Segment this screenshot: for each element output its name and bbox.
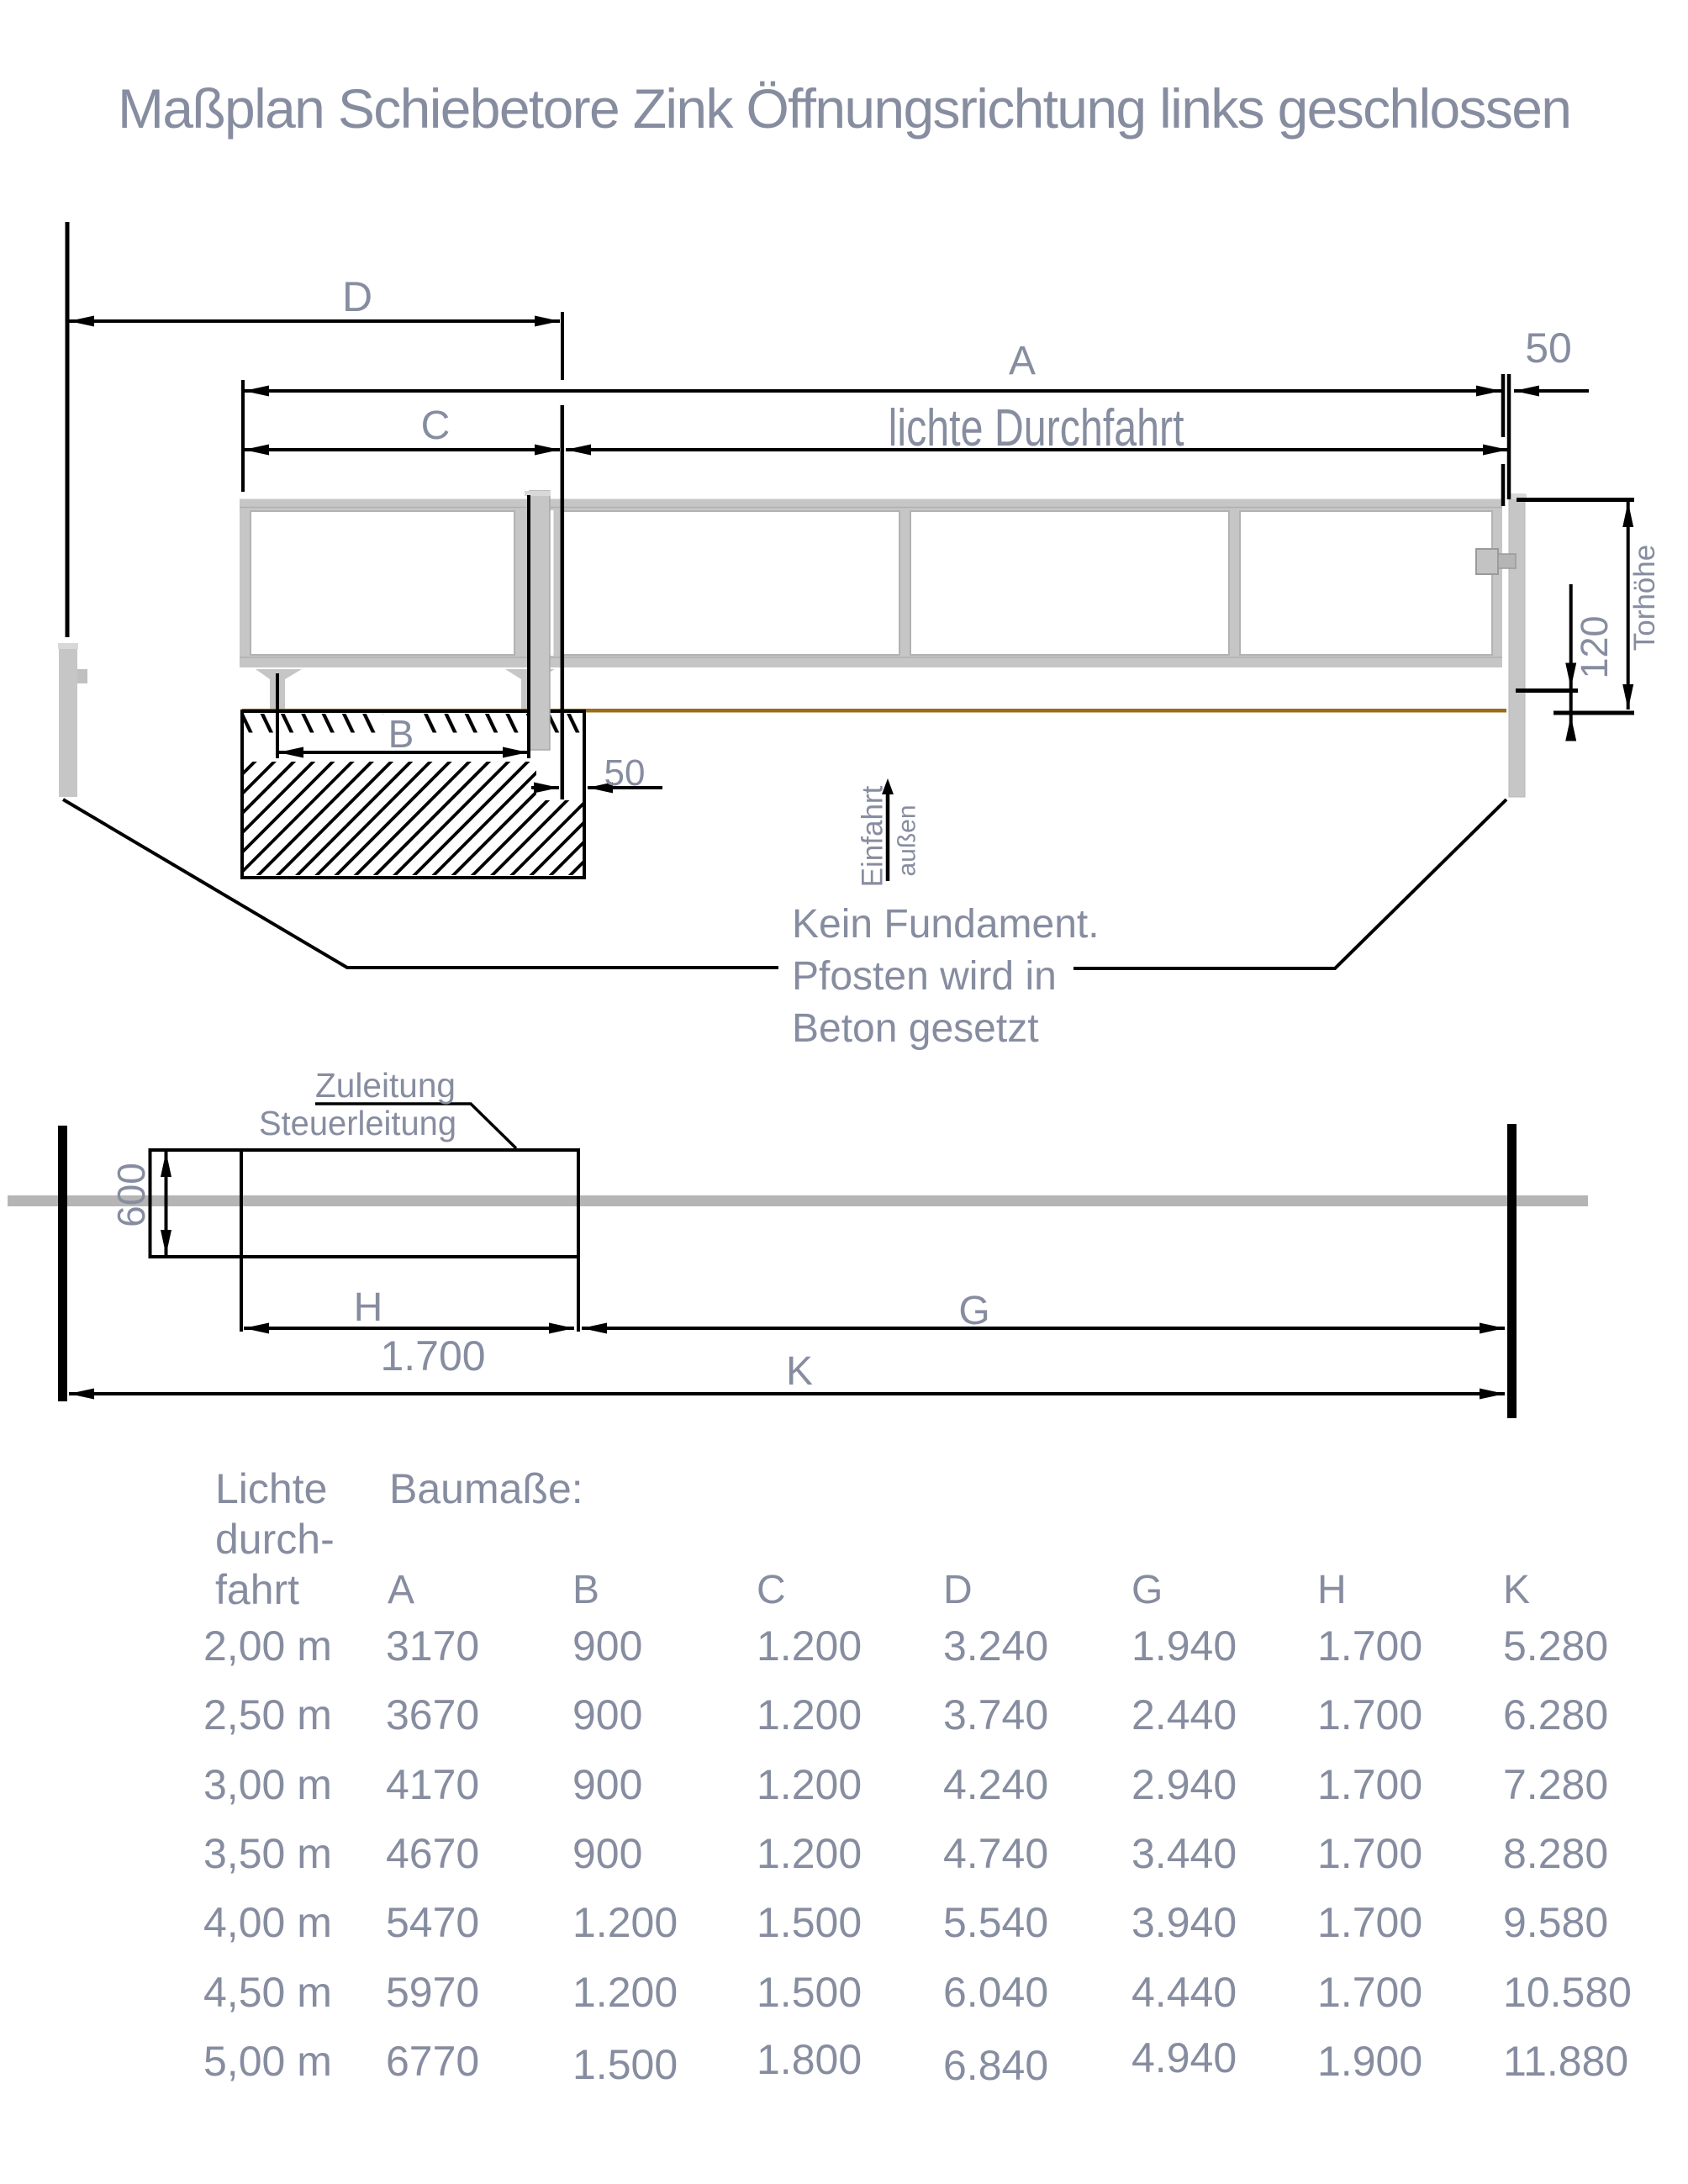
svg-text:1.700: 1.700	[380, 1332, 485, 1380]
svg-text:1.500: 1.500	[757, 1899, 862, 1946]
svg-text:3670: 3670	[386, 1691, 479, 1738]
svg-text:B: B	[572, 1568, 599, 1612]
svg-text:1.900: 1.900	[1317, 2038, 1422, 2085]
svg-text:50: 50	[1525, 324, 1572, 372]
svg-text:4670: 4670	[386, 1830, 479, 1877]
svg-text:3.440: 3.440	[1131, 1830, 1237, 1877]
svg-text:3.240: 3.240	[943, 1622, 1048, 1670]
svg-text:1.700: 1.700	[1317, 1899, 1422, 1946]
svg-text:3.740: 3.740	[943, 1691, 1048, 1738]
svg-text:3,00 m: 3,00 m	[203, 1761, 332, 1808]
svg-text:1.200: 1.200	[572, 1899, 678, 1946]
svg-text:3,50 m: 3,50 m	[203, 1830, 332, 1877]
svg-text:Lichte: Lichte	[215, 1465, 327, 1512]
svg-text:1.700: 1.700	[1317, 1622, 1422, 1670]
svg-text:1.700: 1.700	[1317, 1830, 1422, 1877]
svg-text:1.200: 1.200	[757, 1761, 862, 1808]
svg-text:1.500: 1.500	[757, 1969, 862, 2016]
svg-text:7.280: 7.280	[1503, 1761, 1608, 1808]
svg-text:900: 900	[572, 1830, 642, 1877]
svg-text:1.700: 1.700	[1317, 1969, 1422, 2016]
svg-text:2,00 m: 2,00 m	[203, 1622, 332, 1670]
svg-text:1.940: 1.940	[1131, 1622, 1237, 1670]
svg-text:11.880: 11.880	[1503, 2038, 1628, 2085]
svg-text:4.940: 4.940	[1131, 2034, 1237, 2081]
svg-text:4,00 m: 4,00 m	[203, 1899, 332, 1946]
svg-text:Beton gesetzt: Beton gesetzt	[792, 1006, 1039, 1051]
svg-text:Kein Fundament.: Kein Fundament.	[792, 902, 1100, 947]
svg-text:2.440: 2.440	[1131, 1691, 1237, 1738]
svg-text:1.200: 1.200	[757, 1691, 862, 1738]
svg-text:1.700: 1.700	[1317, 1761, 1422, 1808]
svg-text:6.280: 6.280	[1503, 1691, 1608, 1738]
svg-text:900: 900	[572, 1761, 642, 1808]
svg-text:3.940: 3.940	[1131, 1899, 1237, 1946]
svg-text:4,50 m: 4,50 m	[203, 1969, 332, 2016]
svg-text:1.200: 1.200	[757, 1622, 862, 1670]
svg-text:8.280: 8.280	[1503, 1830, 1608, 1877]
svg-text:H: H	[1317, 1568, 1347, 1612]
svg-text:1.500: 1.500	[572, 2041, 678, 2088]
svg-text:fahrt: fahrt	[215, 1566, 299, 1613]
svg-text:Baumaße:: Baumaße:	[389, 1465, 583, 1512]
svg-text:6.840: 6.840	[943, 2042, 1048, 2089]
svg-text:K: K	[1503, 1568, 1530, 1612]
svg-text:Pfosten wird in: Pfosten wird in	[792, 954, 1057, 999]
svg-text:durch-: durch-	[215, 1516, 335, 1563]
svg-text:1.200: 1.200	[572, 1969, 678, 2016]
svg-text:G: G	[1131, 1568, 1163, 1612]
svg-text:1.700: 1.700	[1317, 1691, 1422, 1738]
svg-text:D: D	[342, 273, 372, 320]
svg-text:50: 50	[604, 752, 646, 794]
svg-text:5.280: 5.280	[1503, 1622, 1608, 1670]
svg-text:5.540: 5.540	[943, 1899, 1048, 1946]
svg-text:außen: außen	[894, 804, 921, 876]
svg-text:B: B	[388, 712, 414, 756]
svg-text:K: K	[786, 1349, 813, 1394]
svg-text:4.440: 4.440	[1131, 1969, 1237, 2016]
svg-text:6.040: 6.040	[943, 1969, 1048, 2016]
svg-text:4.240: 4.240	[943, 1761, 1048, 1808]
svg-text:5470: 5470	[386, 1899, 479, 1946]
svg-text:900: 900	[572, 1691, 642, 1738]
svg-text:1.200: 1.200	[757, 1830, 862, 1877]
svg-text:900: 900	[572, 1622, 642, 1670]
svg-text:Einfahrt: Einfahrt	[857, 785, 889, 887]
svg-text:600: 600	[109, 1163, 153, 1227]
svg-text:C: C	[757, 1568, 786, 1612]
svg-text:A: A	[1009, 339, 1036, 383]
svg-text:5970: 5970	[386, 1969, 479, 2016]
svg-text:Maßplan Schiebetore Zink Öffnu: Maßplan Schiebetore Zink Öffnungsrichtun…	[118, 77, 1572, 140]
svg-text:6770: 6770	[386, 2038, 479, 2085]
svg-text:lichte Durchfahrt: lichte Durchfahrt	[889, 399, 1184, 457]
svg-text:2,50 m: 2,50 m	[203, 1691, 332, 1738]
svg-text:Torhöhe: Torhöhe	[1628, 545, 1661, 651]
svg-text:4.740: 4.740	[943, 1830, 1048, 1877]
svg-text:C: C	[421, 404, 451, 448]
svg-text:D: D	[943, 1568, 973, 1612]
svg-text:H: H	[354, 1285, 383, 1330]
svg-text:4170: 4170	[386, 1761, 479, 1808]
svg-text:5,00 m: 5,00 m	[203, 2038, 332, 2085]
svg-text:A: A	[388, 1568, 414, 1612]
svg-text:3170: 3170	[386, 1622, 479, 1670]
svg-text:2.940: 2.940	[1131, 1761, 1237, 1808]
svg-text:1.800: 1.800	[757, 2036, 862, 2083]
svg-text:Steuerleitung: Steuerleitung	[259, 1104, 456, 1142]
svg-text:Zuleitung: Zuleitung	[315, 1066, 456, 1105]
svg-text:G: G	[958, 1289, 989, 1333]
svg-text:120: 120	[1573, 615, 1616, 678]
svg-text:10.580: 10.580	[1503, 1969, 1632, 2016]
svg-text:9.580: 9.580	[1503, 1899, 1608, 1946]
